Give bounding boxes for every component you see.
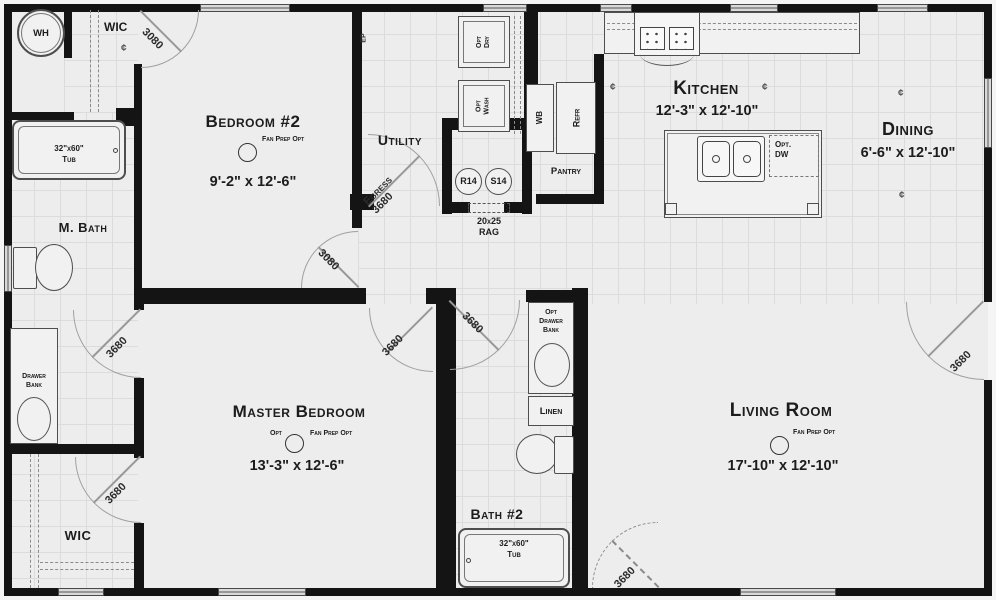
- master-fan-prep: [285, 434, 304, 453]
- bath2-vanity-l2: Drawer: [539, 318, 563, 326]
- return-air-grille: [468, 203, 510, 213]
- centerline-mark-kitchen-left: ¢: [610, 82, 616, 93]
- opt-dryer-l2: Dry: [484, 36, 491, 48]
- opt-dishwasher-l1: Opt.: [775, 140, 791, 149]
- linen-label: Linen: [540, 406, 563, 417]
- wall-exterior-left: [4, 4, 12, 596]
- window-kitchen-top-left: [600, 4, 632, 12]
- island-sink-basin-right: [733, 141, 761, 177]
- elec-panel-label: EP: [361, 33, 369, 42]
- bath2-vanity-l1: Opt: [545, 309, 557, 317]
- bedroom2-fan-note: Fan Prep Opt: [262, 136, 304, 144]
- vent-s14: S14: [485, 168, 512, 195]
- island-sink-basin-left: [702, 141, 730, 177]
- wall-under-wh: [4, 112, 74, 120]
- opt-dishwasher: Opt. DW: [769, 135, 819, 177]
- opt-washer-label: Opt Wash: [476, 97, 492, 114]
- room-label-living: Living Room: [730, 400, 833, 422]
- window-mbath-left: [4, 245, 12, 292]
- bath2-tub-faucet: [466, 558, 471, 563]
- bedroom2-fan-prep: [238, 143, 257, 162]
- wall-exterior-bottom: [4, 588, 992, 596]
- mbath-tub-size: 32"x60": [54, 144, 83, 153]
- island-sink-unit: [697, 136, 765, 182]
- mbath-tub: 32"x60" Tub: [12, 120, 126, 180]
- window-kitchen-top-right: [730, 4, 778, 12]
- pantry-label: Pantry: [551, 166, 581, 177]
- rag-size: 20x25: [477, 216, 501, 226]
- elec-panel-tag: EP: [358, 26, 372, 50]
- centerline-mark-dining-top: ¢: [898, 88, 904, 99]
- wic-lower-shelf-line-3: [40, 562, 134, 563]
- room-label-kitchen: Kitchen: [673, 78, 739, 100]
- water-heater-label: WH: [33, 28, 49, 39]
- island-post-right: [807, 203, 819, 215]
- room-dims-living: 17'-10" x 12'-10": [728, 458, 839, 474]
- opt-washer-l2: Wash: [484, 97, 491, 114]
- bath2-vanity-sink: [534, 343, 570, 387]
- room-dims-dining: 6'-6" x 12'-10": [861, 145, 956, 161]
- bath2-toilet-bowl: [516, 434, 558, 474]
- wall-furnace-bottom-left: [442, 202, 470, 213]
- mbath-toilet-bowl: [35, 244, 73, 291]
- room-label-bedroom2: Bedroom #2: [206, 112, 301, 132]
- living-fan-note: Fan Prep Opt: [793, 429, 835, 437]
- opt-dishwasher-l2: DW: [775, 150, 788, 159]
- range-burners-left: [640, 27, 665, 50]
- mbath-tub-label: Tub: [62, 155, 76, 164]
- window-utility-top: [483, 4, 527, 12]
- opt-dryer-label: Opt Dry: [476, 36, 492, 48]
- room-label-bath2: Bath #2: [471, 506, 524, 522]
- wrap-board-label: WB: [535, 111, 544, 124]
- vent-s14-label: S14: [490, 176, 506, 186]
- bath2-vanity: Opt Drawer Bank: [528, 302, 574, 394]
- wic-lower-shelf-line-2: [38, 454, 39, 588]
- opt-dryer: Opt Dry: [458, 16, 510, 68]
- bath2-vanity-l3: Bank: [543, 327, 559, 335]
- opt-washer-l1: Opt: [476, 100, 483, 112]
- wall-bedroom2-master: [134, 288, 366, 304]
- wic-upper-shelf-line-2: [98, 10, 99, 112]
- window-master-bottom: [218, 588, 306, 596]
- wall-exterior-right-lower: [984, 380, 992, 596]
- floor-plan: WH 32"x60" Tub Drawer Bank Opt Dry Opt W…: [0, 0, 996, 600]
- wrap-board-cabinet: WB: [526, 84, 554, 152]
- centerline-mark-dining-right: ¢: [899, 190, 905, 201]
- rag-label: RAG: [479, 227, 499, 237]
- master-opt-note: Opt: [270, 430, 282, 438]
- room-label-wic-lower: WIC: [65, 528, 92, 543]
- wall-bedroom2-left: [134, 64, 142, 292]
- vent-r14: R14: [455, 168, 482, 195]
- wic-lower-shelf-line-1: [30, 454, 31, 588]
- mbath-vanity-label-2: Bank: [26, 382, 42, 390]
- wall-pantry-bottom: [536, 194, 604, 204]
- wall-mbath-right-c: [134, 523, 144, 588]
- living-fan-prep: [770, 436, 789, 455]
- kitchen-island: Opt. DW: [664, 130, 822, 218]
- room-dims-master: 13'-3" x 12'-6": [250, 458, 345, 474]
- window-living-bottom: [740, 588, 836, 596]
- centerline-mark-wic: ¢: [121, 43, 127, 54]
- centerline-mark-kitchen-right: ¢: [762, 82, 768, 93]
- refrigerator-label: Refr: [571, 109, 581, 128]
- room-dims-bedroom2: 9'-2" x 12'-6": [210, 174, 297, 190]
- refrigerator: Refr: [556, 82, 596, 154]
- mbath-vanity-label-1: Drawer: [22, 373, 46, 381]
- mbath-vanity-sink: [17, 397, 51, 441]
- bath2-tub: 32"x60" Tub: [458, 528, 570, 588]
- range: [634, 12, 700, 56]
- bath2-toilet-tank: [554, 436, 574, 474]
- room-label-wic-upper: WIC: [104, 20, 127, 34]
- room-dims-kitchen: 12'-3" x 12'-10": [656, 103, 759, 119]
- vent-r14-label: R14: [460, 176, 477, 186]
- island-sink-drain-left: [712, 155, 720, 163]
- wall-wic-lower-top: [4, 444, 142, 454]
- mbath-toilet-tank: [13, 247, 37, 289]
- wic-lower-shelf-line-4: [40, 569, 134, 570]
- room-label-utility: Utility: [378, 132, 422, 148]
- wic-upper-shelf-line-1: [90, 10, 91, 112]
- range-burners-right: [669, 27, 694, 50]
- room-label-dining: Dining: [882, 119, 934, 140]
- wall-wh-wic: [64, 8, 72, 58]
- washer-nook-dash-2: [520, 16, 521, 134]
- island-post-left: [665, 203, 677, 215]
- window-dining-right: [984, 78, 992, 148]
- window-bedroom2-top: [200, 4, 290, 12]
- opt-dryer-l1: Opt: [476, 36, 483, 48]
- window-wic-bottom: [58, 588, 104, 596]
- mbath-tub-faucet: [113, 148, 118, 153]
- room-label-master: Master Bedroom: [233, 402, 366, 422]
- linen-closet: Linen: [528, 396, 574, 426]
- wall-exterior-right-upper: [984, 4, 992, 302]
- wall-furnace-left: [442, 118, 452, 214]
- opt-washer: Opt Wash: [458, 80, 510, 132]
- room-label-mbath: M. Bath: [59, 220, 108, 235]
- water-heater: WH: [17, 9, 65, 57]
- bath2-tub-size: 32"x60": [499, 539, 528, 548]
- window-dining-top: [877, 4, 928, 12]
- island-sink-drain-right: [743, 155, 751, 163]
- bath2-tub-label: Tub: [507, 550, 521, 559]
- washer-nook-dash-1: [514, 16, 515, 134]
- mbath-vanity: Drawer Bank: [10, 328, 58, 444]
- wall-bath2-living: [572, 288, 588, 596]
- master-fan-note: Fan Prep Opt: [310, 430, 352, 438]
